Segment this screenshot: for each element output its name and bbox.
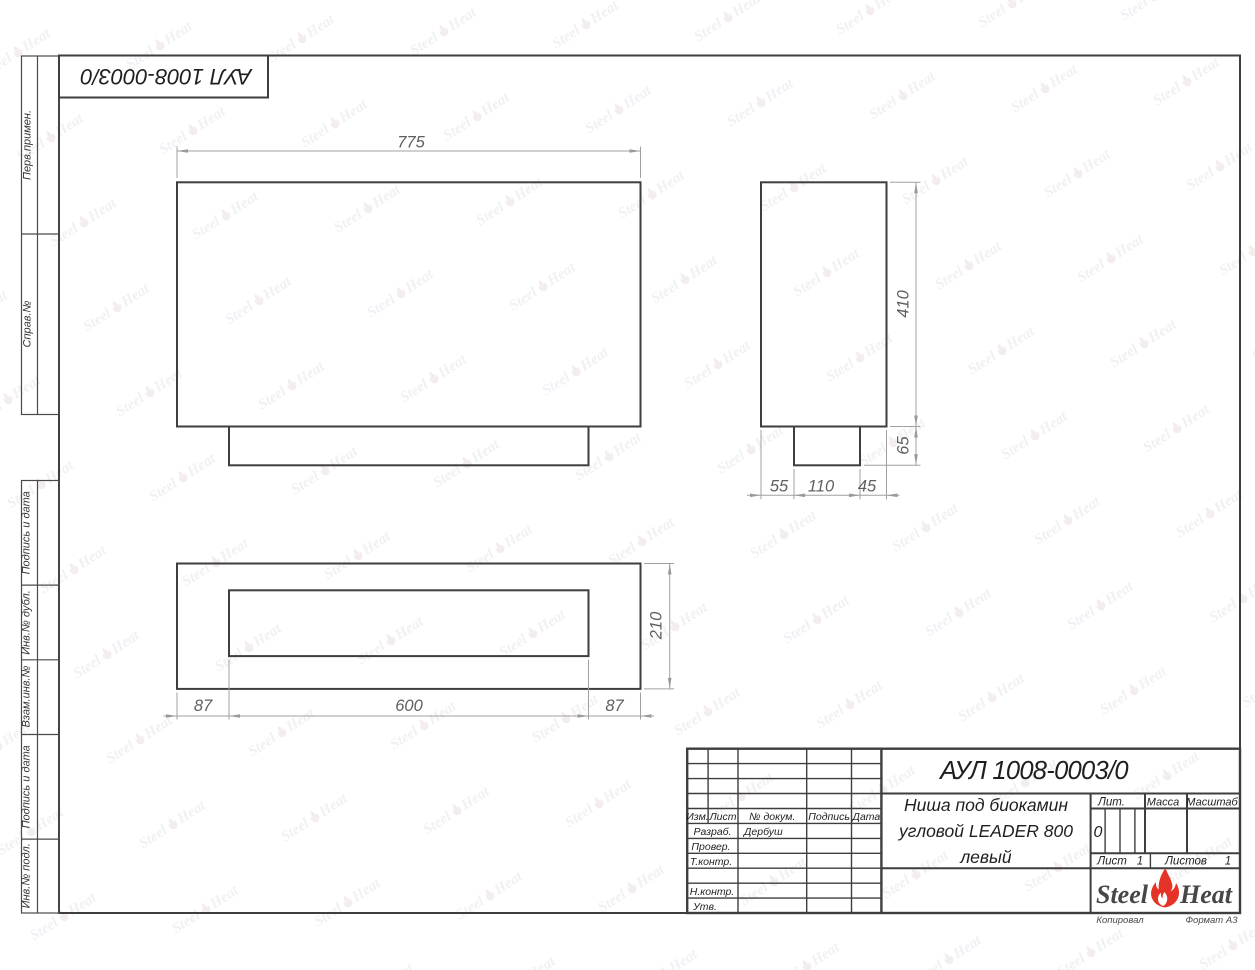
svg-text:Дата: Дата [852,811,881,823]
svg-text:Ниша под биокамин: Ниша под биокамин [904,795,1068,815]
svg-text:410: 410 [895,289,913,317]
svg-text:Разраб.: Разраб. [694,826,732,838]
svg-text:Т.контр.: Т.контр. [690,856,732,868]
svg-text:Взам.инв.№: Взам.инв.№ [21,665,33,727]
svg-text:Steel: Steel [1096,880,1149,909]
svg-text:Лит.: Лит. [1097,797,1125,809]
svg-text:Лист: Лист [708,811,736,823]
svg-text:№ докум.: № докум. [749,811,795,823]
svg-text:Н.контр.: Н.контр. [690,886,734,898]
svg-text:Подпись: Подпись [808,811,850,823]
svg-text:АУЛ 1008-0003/0: АУЛ 1008-0003/0 [938,757,1128,785]
svg-text:Провер.: Провер. [691,841,730,853]
svg-text:55: 55 [770,478,789,496]
svg-text:Heat: Heat [1179,880,1233,909]
svg-text:АУЛ 1008-0003/0: АУЛ 1008-0003/0 [80,64,254,89]
svg-text:Утв.: Утв. [692,901,717,913]
svg-text:Копировал: Копировал [1096,915,1144,926]
svg-text:600: 600 [395,697,423,715]
svg-text:Формат А3: Формат А3 [1186,915,1239,926]
svg-text:87: 87 [605,697,624,715]
svg-text:Инв.№ подл.: Инв.№ подл. [21,843,33,908]
svg-text:1: 1 [1225,856,1231,868]
svg-text:Инв.№ дубл.: Инв.№ дубл. [21,590,33,655]
svg-text:Листов: Листов [1164,856,1207,868]
svg-text:Лист: Лист [1096,856,1127,868]
svg-text:левый: левый [959,847,1012,867]
svg-text:Перв.примен.: Перв.примен. [22,110,34,180]
svg-text:Изм.: Изм. [686,811,708,823]
svg-text:1: 1 [1137,856,1143,868]
svg-text:87: 87 [194,697,213,715]
svg-text:Справ.№: Справ.№ [22,300,34,347]
svg-text:Подпись и дата: Подпись и дата [21,491,33,574]
svg-text:Дербуш: Дербуш [743,826,783,838]
svg-text:Масштаб: Масштаб [1186,797,1238,809]
svg-text:110: 110 [808,478,835,496]
svg-text:Подпись и дата: Подпись и дата [21,745,33,828]
svg-text:210: 210 [648,611,666,640]
svg-text:угловой LEADER 800: угловой LEADER 800 [898,821,1073,841]
svg-text:Масса: Масса [1147,797,1180,809]
svg-text:65: 65 [895,436,913,455]
svg-text:0: 0 [1094,824,1103,841]
svg-text:775: 775 [397,134,425,152]
svg-text:45: 45 [858,478,877,496]
